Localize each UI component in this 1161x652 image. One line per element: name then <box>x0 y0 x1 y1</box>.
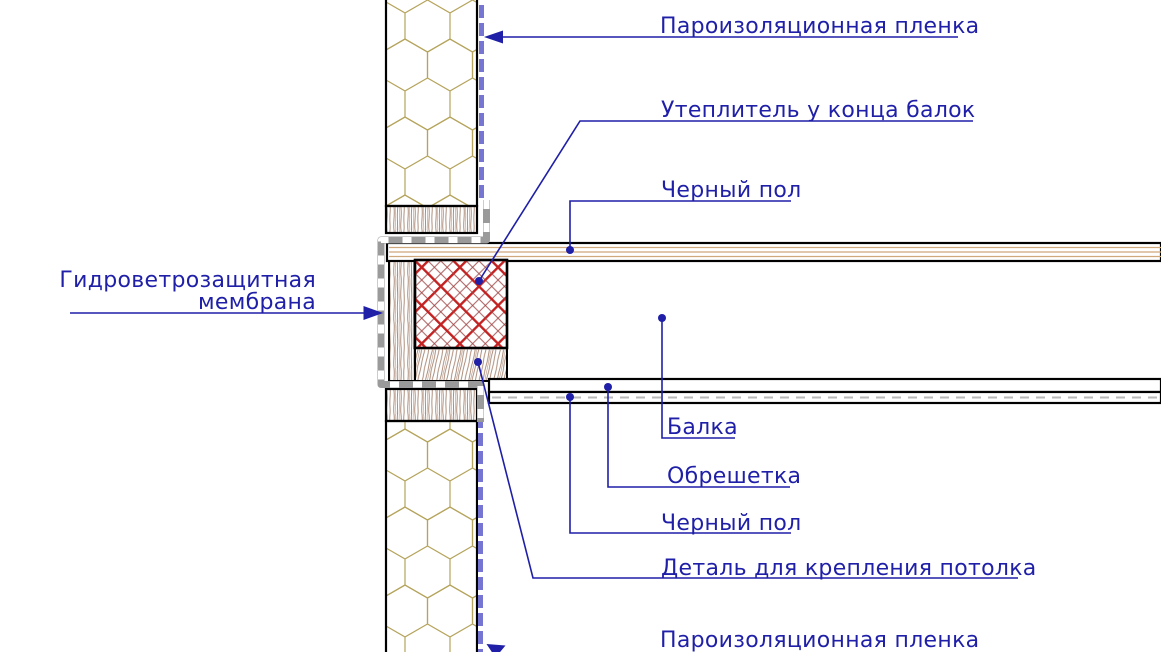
beam-end-insulation-hatch-b <box>415 260 507 348</box>
bottom-wall-top-plate <box>386 389 477 421</box>
label-lathing: Обрешетка <box>667 464 801 489</box>
ceiling-assembly <box>489 379 1161 403</box>
top-wall-bottom-plate <box>386 206 477 233</box>
label-subfloor-bottom: Черный пол <box>661 511 802 536</box>
arrowhead-upleft-icon <box>487 644 506 652</box>
arrowhead-left-icon <box>484 31 503 44</box>
leader-dot <box>658 314 666 322</box>
construction-detail-drawing: Пароизоляционная пленка Утеплитель у кон… <box>0 0 1161 652</box>
top-wall <box>386 0 477 233</box>
leader-dot <box>474 358 482 366</box>
label-beam: Балка <box>667 415 738 440</box>
bottom-wall-insulation <box>386 421 477 652</box>
leader-vapor-film-bottom <box>487 644 519 652</box>
top-wall-insulation <box>386 0 477 206</box>
label-wind-membrane-line2: мембрана <box>198 290 316 315</box>
floor-deck <box>387 243 1161 261</box>
construction-detail-page: Пароизоляционная пленка Утеплитель у кон… <box>0 0 1161 652</box>
label-ceiling-fixing-detail: Деталь для крепления потолка <box>661 556 1037 581</box>
ceiling-fixing-block <box>415 348 507 381</box>
ceiling-lathing-band <box>489 379 1161 392</box>
label-vapor-film-top: Пароизоляционная пленка <box>660 14 979 39</box>
leader-dot <box>475 277 483 285</box>
rim-stud <box>389 261 415 381</box>
label-vapor-film-bottom: Пароизоляционная пленка <box>660 628 979 652</box>
label-subfloor-top: Черный пол <box>661 178 802 203</box>
label-insulation-beam-end: Утеплитель у конца балок <box>661 98 976 123</box>
leader-dot <box>604 383 612 391</box>
leader-dot <box>566 393 574 401</box>
leader-dot <box>566 246 574 254</box>
bottom-wall <box>386 389 477 652</box>
